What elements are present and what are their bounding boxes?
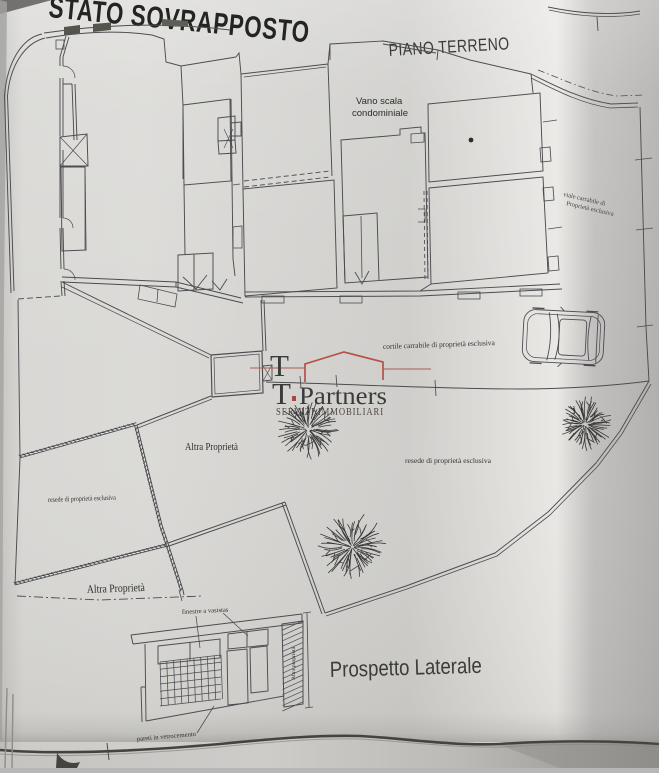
svg-text:resede di proprietà esclusiva: resede di proprietà esclusiva [405,456,492,465]
svg-text:Partners: Partners [299,383,387,410]
svg-text:Altra Proprietà: Altra Proprietà [185,442,238,453]
svg-text:Altra Proprietà: Altra Proprietà [87,582,145,596]
svg-text:Vano scala: Vano scala [356,96,403,107]
svg-text:condominiale: condominiale [352,108,408,119]
svg-text:T: T [272,376,291,411]
svg-text:Altra proprietà: Altra proprietà [291,646,297,680]
svg-text:Prospetto Laterale: Prospetto Laterale [329,653,482,682]
